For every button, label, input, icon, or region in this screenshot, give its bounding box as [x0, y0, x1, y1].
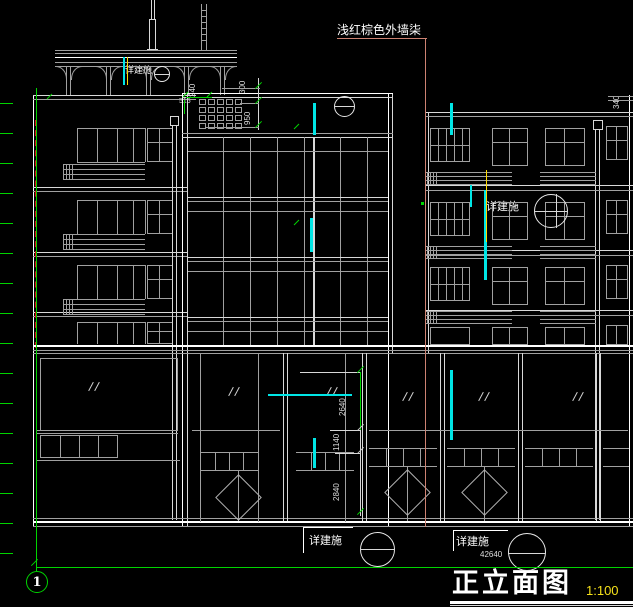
facade-line — [33, 521, 633, 523]
annotation-leader-drop — [425, 38, 426, 527]
facade-line — [188, 201, 388, 202]
window-frame — [147, 265, 173, 299]
facade-line — [37, 460, 180, 461]
glass-hatch-mark — [234, 387, 240, 396]
facade-line — [426, 172, 512, 173]
detail-ref-entrance-right: 详建施 — [456, 537, 489, 548]
dimension-ext — [184, 100, 185, 114]
facade-line — [77, 128, 145, 129]
facade-line — [360, 549, 395, 550]
lattice-cell — [235, 99, 242, 105]
facade-line — [616, 126, 617, 160]
facade-line — [188, 317, 388, 318]
facade-line — [606, 140, 628, 141]
leader-line — [453, 530, 508, 531]
facade-line — [369, 466, 437, 467]
downpipe-hopper — [170, 116, 179, 126]
facade-line — [492, 142, 528, 143]
facade-line — [63, 164, 145, 165]
glass-hatch-mark — [228, 387, 234, 396]
window-frame — [492, 327, 528, 345]
facade-line — [97, 265, 98, 299]
facade-line — [426, 319, 512, 320]
facade-line — [386, 448, 387, 466]
lattice-cell — [208, 107, 215, 113]
level-tick — [0, 283, 13, 284]
window-frame — [492, 202, 528, 240]
facade-line — [33, 252, 187, 253]
lattice-cell — [208, 123, 215, 129]
facade-line — [33, 256, 187, 257]
glass-hatch-mark — [88, 382, 94, 391]
facade-line — [63, 309, 145, 310]
storefront-pilaster — [522, 353, 523, 521]
storefront-pilaster — [287, 353, 288, 521]
title-underline — [450, 605, 633, 606]
facade-line — [426, 315, 512, 316]
facade-line — [69, 164, 70, 179]
facade-line — [145, 128, 146, 162]
facade-line — [426, 250, 512, 251]
facade-line — [117, 128, 118, 162]
facade-line — [182, 93, 183, 527]
facade-line — [564, 267, 565, 305]
facade-line — [184, 66, 185, 95]
canopy-bracket-arc — [189, 66, 201, 80]
facade-line — [426, 184, 512, 185]
facade-line — [542, 448, 543, 466]
facade-line — [146, 66, 147, 95]
level-tick — [0, 313, 13, 314]
facade-line — [509, 202, 510, 240]
glass-hatch-mark — [94, 382, 100, 391]
facade-line — [133, 128, 134, 162]
lattice-cell — [199, 123, 206, 129]
dimension-line — [360, 372, 361, 430]
facade-line — [540, 176, 596, 177]
facade-line — [540, 311, 596, 312]
facade-line — [188, 331, 388, 332]
facade-line — [223, 137, 224, 345]
facade-line — [69, 234, 70, 249]
window-frame — [606, 200, 628, 234]
facade-line — [425, 190, 633, 191]
glass-hatch-mark — [408, 392, 414, 401]
facade-line — [540, 323, 596, 324]
facade-line — [603, 448, 629, 449]
facade-line — [33, 518, 633, 519]
drawing-scale: 1:100 — [586, 584, 619, 597]
level-tick — [0, 403, 13, 404]
facade-line — [188, 257, 388, 258]
detail-ref-entrance-left: 详建施 — [309, 536, 342, 547]
facade-line — [63, 174, 145, 175]
facade-line — [229, 452, 230, 470]
facade-line — [145, 200, 146, 234]
facade-line — [66, 66, 67, 95]
facade-line — [37, 433, 178, 434]
facade-line — [200, 353, 201, 522]
facade-line — [540, 180, 596, 181]
facade-line — [304, 137, 305, 345]
facade-line — [540, 258, 596, 259]
facade-line — [339, 452, 340, 470]
facade-line — [63, 234, 64, 249]
facade-line — [540, 315, 596, 316]
facade-line — [433, 172, 434, 185]
facade-line — [151, 0, 152, 20]
facade-line — [608, 96, 633, 97]
facade-line — [188, 66, 189, 95]
facade-line — [481, 448, 482, 466]
facade-line — [428, 112, 429, 353]
lattice-cell — [217, 123, 224, 129]
storefront-pilaster — [600, 353, 601, 521]
facade-line — [63, 304, 145, 305]
facade-line — [426, 176, 512, 177]
axis-bubble-1: 1 — [26, 571, 48, 593]
facade-line — [559, 448, 560, 466]
canopy-bracket-arc — [111, 66, 123, 80]
lattice-cell — [226, 99, 233, 105]
facade-line — [525, 466, 593, 467]
facade-line — [63, 244, 145, 245]
facade-line — [433, 246, 434, 259]
facade-line — [97, 322, 98, 344]
yellow-mark — [127, 57, 128, 85]
facade-line — [145, 265, 146, 299]
dimension-tick — [294, 124, 300, 130]
facade-line — [110, 66, 111, 95]
facade-line — [430, 219, 470, 220]
facade-line — [426, 311, 512, 312]
building-left-edge — [33, 95, 34, 527]
facade-line — [154, 74, 170, 75]
facade-line — [201, 28, 207, 29]
downpipe-hopper — [593, 120, 603, 130]
leader-line — [303, 527, 353, 528]
glass-hatch-mark — [572, 392, 578, 401]
facade-line — [426, 254, 512, 255]
lattice-cell — [199, 99, 206, 105]
dimension-ext — [205, 127, 259, 128]
window-frame — [430, 327, 470, 345]
facade-line — [436, 246, 437, 259]
facade-line — [201, 16, 207, 17]
level-tick — [0, 163, 13, 164]
facade-line — [425, 116, 633, 117]
facade-line — [334, 106, 355, 107]
facade-line — [433, 311, 434, 324]
storefront-pilaster — [440, 353, 441, 521]
facade-line — [63, 314, 145, 315]
facade-line — [77, 128, 78, 162]
yellow-mark — [486, 170, 487, 242]
facade-line — [340, 137, 341, 345]
cyan-mark — [450, 103, 453, 135]
facade-line — [159, 265, 160, 299]
facade-line — [69, 299, 70, 314]
facade-line — [159, 200, 160, 234]
lattice-cell — [235, 123, 242, 129]
facade-line — [72, 234, 73, 249]
facade-line — [509, 128, 510, 166]
facade-line — [40, 358, 178, 359]
facade-line — [367, 137, 368, 345]
facade-line — [147, 49, 158, 50]
lattice-cell — [217, 99, 224, 105]
facade-line — [63, 239, 145, 240]
facade-line — [616, 325, 617, 345]
facade-line — [63, 164, 64, 179]
level-tick — [0, 463, 13, 464]
level-tick — [0, 493, 13, 494]
facade-line — [426, 258, 512, 259]
facade-line — [177, 358, 178, 430]
facade-line — [540, 319, 596, 320]
storefront-pilaster — [362, 353, 363, 521]
dimension-line — [360, 430, 361, 516]
paint-leader — [268, 394, 352, 396]
dim-1140: 1140 — [333, 434, 341, 451]
facade-line — [345, 353, 346, 522]
facade-line — [250, 137, 251, 345]
facade-line — [60, 435, 61, 458]
green-node — [421, 202, 424, 205]
facade-line — [188, 211, 388, 212]
facade-line — [201, 34, 207, 35]
facade-line — [606, 214, 628, 215]
facade-line — [147, 214, 173, 215]
facade-line — [97, 200, 98, 234]
facade-line — [311, 452, 312, 470]
facade-line — [77, 200, 145, 201]
lattice-cell — [226, 123, 233, 129]
facade-line — [182, 93, 393, 94]
facade-line — [426, 323, 512, 324]
level-tick — [0, 433, 13, 434]
level-tick — [0, 253, 13, 254]
cyan-mark — [313, 103, 316, 135]
facade-line — [425, 255, 633, 256]
facade-line — [33, 345, 633, 347]
facade-line — [133, 322, 134, 344]
facade-line — [37, 430, 178, 431]
axis-bubble-label: 1 — [32, 575, 41, 590]
dimension-ext — [300, 372, 360, 373]
facade-line — [98, 435, 99, 458]
facade-line — [325, 452, 326, 470]
facade-line — [556, 194, 557, 228]
facade-line — [106, 66, 107, 95]
facade-line — [200, 470, 258, 471]
facade-line — [147, 279, 173, 280]
facade-line — [425, 185, 633, 186]
window-frame — [147, 128, 173, 162]
facade-line — [608, 100, 633, 101]
facade-line — [430, 172, 431, 185]
dim-340: 340 — [613, 96, 621, 109]
facade-line — [133, 265, 134, 299]
glass-hatch-mark — [478, 392, 484, 401]
facade-line — [70, 66, 71, 95]
facade-line — [55, 57, 237, 58]
facade-line — [464, 448, 465, 466]
storefront-pilaster — [518, 353, 519, 521]
facade-line — [427, 172, 428, 185]
facade-line — [403, 448, 404, 466]
facade-line — [201, 10, 207, 11]
door-diamond-ornament — [461, 469, 508, 516]
level-tick — [0, 523, 13, 524]
title-underline — [450, 601, 633, 604]
facade-line — [436, 311, 437, 324]
facade-line — [182, 137, 393, 138]
facade-line — [277, 137, 278, 345]
cyan-mark — [470, 185, 472, 207]
wall-finish-annotation: 浅红棕色外墙柒 — [337, 24, 421, 36]
window-frame — [606, 265, 628, 299]
storefront-pilaster — [444, 353, 445, 521]
facade-line — [145, 322, 146, 344]
window-frame — [606, 126, 628, 160]
window-frame — [147, 322, 173, 344]
lattice-cell — [199, 107, 206, 113]
facade-line — [63, 299, 145, 300]
facade-line — [425, 112, 633, 113]
facade-line — [188, 197, 388, 198]
facade-line — [79, 435, 80, 458]
storefront-pilaster — [283, 353, 284, 521]
window-frame — [545, 267, 585, 305]
facade-line — [220, 66, 221, 95]
door-diamond-ornament — [215, 474, 262, 521]
facade-line — [66, 299, 67, 314]
lattice-cell — [208, 115, 215, 121]
window-frame — [492, 128, 528, 166]
facade-line — [243, 452, 244, 470]
facade-line — [426, 246, 512, 247]
facade-line — [564, 327, 565, 345]
cyan-mark — [310, 218, 313, 252]
facade-line — [72, 164, 73, 179]
facade-line — [55, 62, 237, 63]
level-tick — [0, 193, 13, 194]
level-tick — [0, 103, 13, 104]
facade-line — [154, 0, 155, 20]
lattice-cell — [226, 107, 233, 113]
facade-line — [427, 246, 428, 259]
annotation-underline — [337, 38, 427, 39]
facade-line — [33, 99, 196, 100]
facade-line — [427, 311, 428, 324]
window-frame — [147, 200, 173, 234]
facade-line — [33, 350, 633, 351]
facade-line — [33, 191, 187, 192]
dimension-tick — [294, 220, 300, 226]
lattice-cell — [217, 107, 224, 113]
facade-line — [540, 254, 596, 255]
storefront-pilaster — [596, 353, 597, 521]
facade-line — [188, 321, 388, 322]
cyan-mark — [123, 57, 125, 85]
facade-line — [155, 19, 156, 49]
facade-line — [63, 179, 145, 180]
facade-line — [447, 466, 515, 467]
facade-line — [201, 40, 207, 41]
facade-line — [63, 299, 64, 314]
facade-line — [133, 200, 134, 234]
facade-line — [55, 53, 237, 54]
facade-line — [313, 137, 315, 345]
axis-line — [36, 88, 37, 571]
dim-2840: 2840 — [333, 483, 341, 501]
dimension-line — [186, 97, 212, 98]
facade-line — [426, 180, 512, 181]
facade-line — [192, 430, 280, 431]
facade-line — [509, 327, 510, 345]
leader-line — [303, 527, 304, 553]
facade-line — [77, 322, 78, 344]
facade-line — [616, 265, 617, 299]
facade-line — [33, 312, 187, 313]
facade-line — [540, 250, 596, 251]
facade-line — [149, 19, 150, 49]
facade-line — [150, 66, 151, 95]
facade-line — [147, 331, 173, 332]
level-tick — [0, 133, 13, 134]
facade-line — [498, 448, 499, 466]
facade-line — [436, 172, 437, 185]
facade-line — [77, 265, 78, 299]
canopy-bracket-arc — [225, 66, 237, 80]
facade-line — [77, 265, 145, 266]
facade-line — [159, 322, 160, 344]
window-frame — [545, 327, 585, 345]
facade-line — [55, 50, 237, 51]
door-diamond-ornament — [384, 469, 431, 516]
facade-line — [224, 66, 225, 95]
leader-line — [453, 530, 454, 551]
facade-line — [182, 97, 393, 98]
facade-line — [540, 172, 596, 173]
facade-line — [77, 162, 145, 163]
facade-line — [147, 142, 173, 143]
level-tick — [0, 223, 13, 224]
cad-elevation-canvas: 浅红棕色外墙柒 详建施 详建施 详建施 详建施 42640 515 300 95… — [0, 0, 633, 607]
lattice-cell — [235, 115, 242, 121]
facade-line — [430, 145, 470, 146]
level-tick — [0, 343, 13, 344]
facade-line — [420, 448, 421, 466]
level-tick — [0, 553, 13, 554]
window-frame — [606, 325, 628, 345]
lattice-cell — [226, 115, 233, 121]
facade-line — [33, 353, 633, 354]
facade-line — [72, 299, 73, 314]
level-tick — [0, 373, 13, 374]
facade-line — [388, 93, 389, 527]
facade-line — [63, 169, 145, 170]
facade-line — [188, 151, 388, 152]
drawing-title: 正立面图 — [452, 570, 572, 597]
glass-hatch-mark — [402, 392, 408, 401]
dim-950: 950 — [244, 112, 252, 125]
lattice-cell — [235, 107, 242, 113]
facade-line — [534, 211, 568, 212]
facade-line — [33, 95, 196, 96]
facade-line — [430, 246, 431, 259]
